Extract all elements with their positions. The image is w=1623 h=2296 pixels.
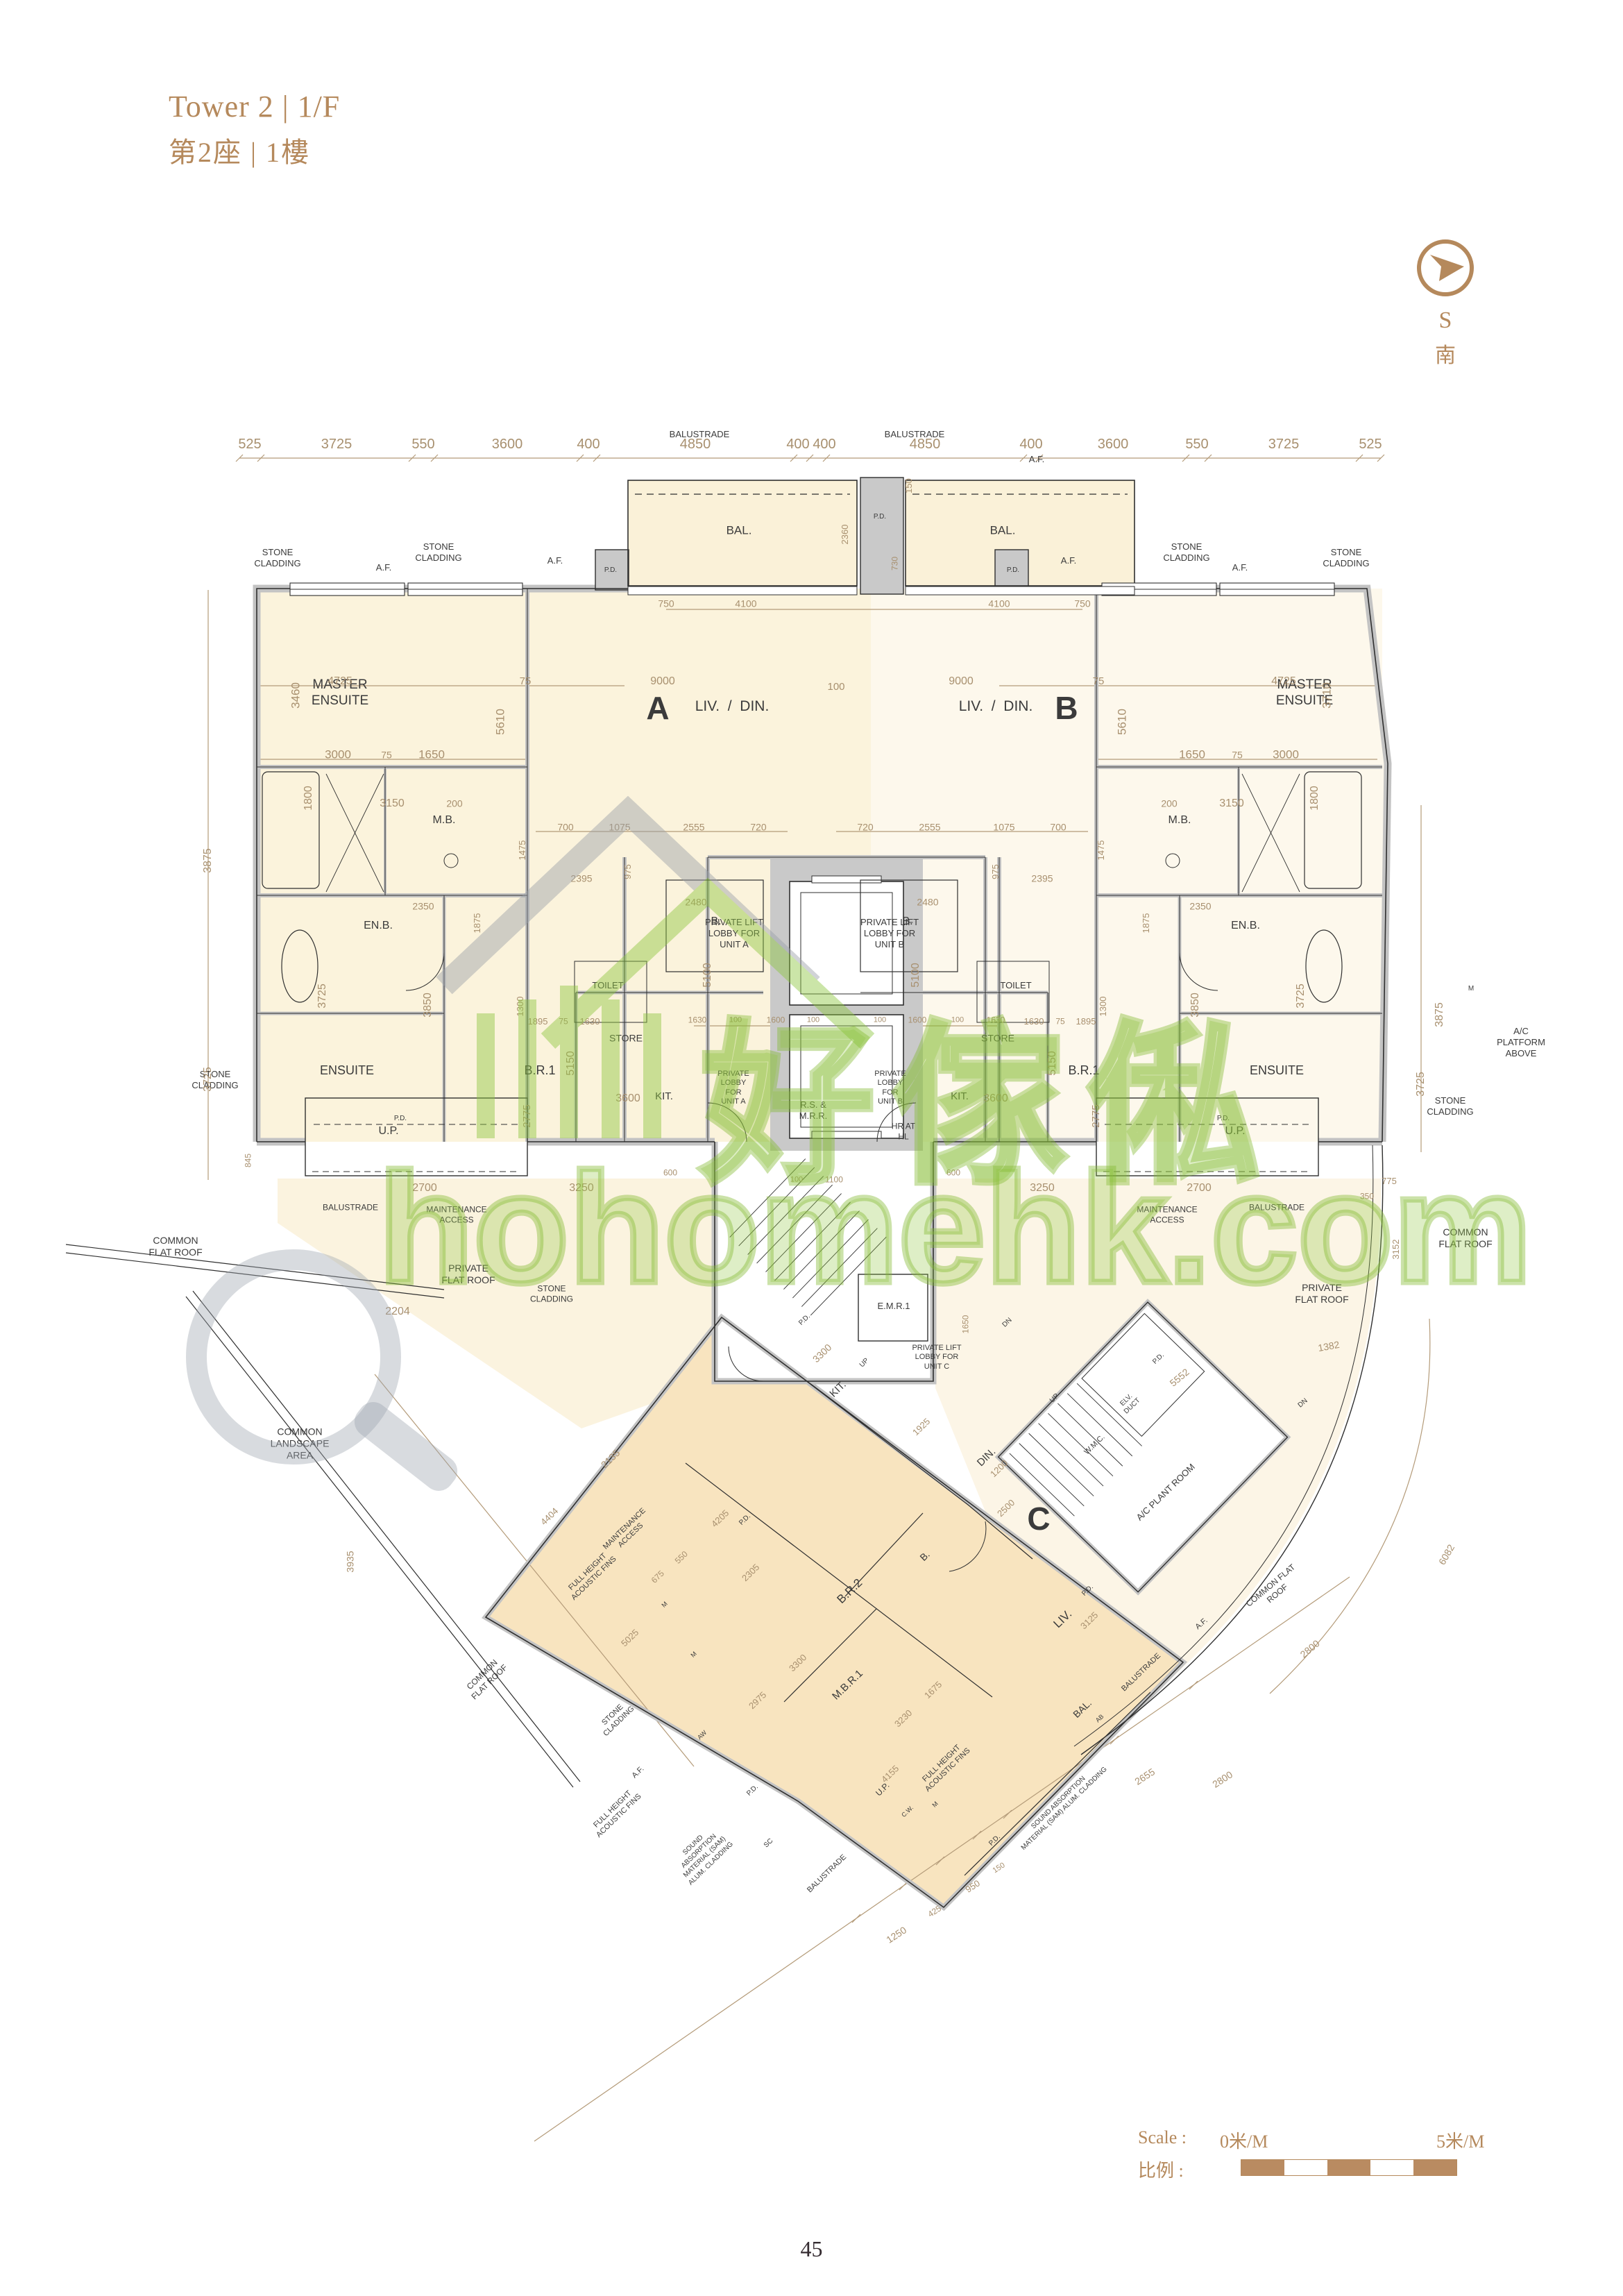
dimension-label: 1630 (688, 1015, 707, 1026)
dimension-label: 550 (411, 436, 434, 453)
dimension-label: 3850 (421, 993, 435, 1018)
dimension-label: 3150 (1219, 797, 1244, 811)
dimension-label: 400 (577, 436, 600, 453)
dimension-label: 525 (1359, 436, 1382, 453)
dimension-label: 3300 (787, 1652, 809, 1673)
dimension-label: 1650 (961, 1315, 971, 1334)
dimension-label: 150 (992, 1861, 1008, 1875)
dimension-label: 1250 (884, 1924, 908, 1945)
dimension-label: 75 (520, 675, 532, 688)
dimension-label: 100 (874, 1015, 886, 1024)
compass-icon (1407, 236, 1484, 303)
dimension-label: 600 (946, 1168, 960, 1179)
scale-segment (1370, 2160, 1413, 2175)
dimension-label: 1675 (922, 1679, 944, 1700)
compass: S 南 (1407, 236, 1484, 369)
dimension-label: 1895 (1076, 1016, 1096, 1027)
scale-start-value: 0米/M (1220, 2127, 1268, 2153)
dimension-label: 1630 (580, 1016, 600, 1027)
dimension-label: 200 (446, 797, 462, 809)
dimension-label: 845 (244, 1154, 254, 1167)
dimension-label: 3725 (1294, 984, 1308, 1008)
dimension-label: 5610 (494, 709, 509, 735)
dimension-label: 5150 (564, 1051, 578, 1076)
dimension-label: 5610 (1116, 709, 1130, 735)
dimension-label: 400 (813, 436, 835, 453)
dimension-label: 400 (786, 436, 809, 453)
dimension-label: 100 (827, 681, 844, 693)
dimension-label: 950 (964, 1877, 983, 1895)
dimension-label: 75 (1232, 749, 1243, 761)
dimension-label: 1475 (517, 841, 528, 861)
title-english: Tower 2 | 1/F (169, 89, 340, 124)
dimension-label: 3600 (615, 1092, 640, 1106)
dimension-label: 2480 (917, 896, 938, 908)
dimension-label: 2555 (683, 821, 704, 833)
scale-segment (1327, 2160, 1370, 2175)
dimension-label: 975 (622, 864, 634, 879)
dimension-label: 75 (1055, 1017, 1064, 1027)
dimension-label: 2800 (1210, 1769, 1234, 1790)
dimension-label: 3230 (892, 1707, 915, 1729)
dimension-label: 720 (750, 821, 766, 833)
dimension-label: 6082 (1436, 1542, 1457, 1567)
dimension-label: 525 (238, 436, 261, 453)
dimension-label: 3725 (1268, 436, 1300, 453)
dimension-label: 1650 (1179, 748, 1205, 763)
dimension-label: 200 (1161, 797, 1177, 809)
dimension-label: 1075 (993, 821, 1014, 833)
dimension-label: 3300 (810, 1342, 834, 1365)
dimension-label: 100 (729, 1015, 742, 1024)
dimension-label: 3600 (492, 436, 523, 453)
dimension-label: 1475 (1096, 841, 1107, 861)
dimension-label: 3875 (1433, 1002, 1447, 1027)
dimension-label: 2700 (1187, 1181, 1212, 1195)
dimension-label: 9000 (650, 675, 675, 689)
dimension-label: 2395 (570, 872, 592, 884)
dimension-label: 4404 (538, 1505, 561, 1527)
scale-segment (1413, 2160, 1456, 2175)
dimension-label: 1895 (528, 1016, 548, 1027)
dimension-label: 4205 (709, 1508, 731, 1529)
compass-letter: S (1407, 307, 1484, 334)
dimension-label: 400 (1019, 436, 1042, 453)
dimension-label: 5150 (1046, 1051, 1060, 1076)
dimension-label: 4850 (680, 436, 711, 453)
scale-label-en: Scale : (1138, 2127, 1187, 2148)
dimension-label: 3125 (1078, 1610, 1101, 1631)
dimension-label: 3725 (1414, 1072, 1428, 1097)
scale-end-value: 5米/M (1436, 2127, 1484, 2153)
dimension-label: 9000 (949, 675, 974, 689)
dimension-label: 2360 (840, 525, 851, 545)
dimension-label: 75 (559, 1017, 568, 1027)
scale-label-zh: 比例 : (1138, 2156, 1184, 2182)
dimension-label: 1100 (825, 1175, 843, 1185)
dimension-label: 1300 (1098, 997, 1109, 1017)
dimension-label: 75 (1093, 675, 1105, 688)
dimension-label: 3000 (1273, 748, 1299, 763)
dimension-label: 100 (807, 1015, 819, 1024)
dimension-label: 3710 (1320, 682, 1335, 709)
dimension-label: 5100 (701, 963, 715, 988)
dimension-label: 775 (1382, 1176, 1397, 1187)
dimension-label: 3850 (1189, 993, 1203, 1018)
dimension-label: 2800 (1298, 1637, 1323, 1660)
dimension-label: 2480 (685, 896, 706, 908)
dimension-label: 1600 (767, 1015, 785, 1026)
dimension-label: 2975 (747, 1689, 769, 1711)
dimension-labels-layer: 5253725550360040048504004004850400360055… (0, 0, 1623, 2296)
dimension-label: 2204 (385, 1305, 410, 1319)
dimension-label: 750 (658, 598, 674, 609)
dimension-label: 3600 (983, 1092, 1008, 1106)
brochure-page: MASTER ENSUITEMASTER ENSUITEALIV. / DIN.… (0, 0, 1623, 2296)
dimension-label: 750 (1074, 598, 1090, 609)
dimension-label: 75 (381, 749, 392, 761)
scale-bar-segments (1241, 2159, 1457, 2176)
dimension-label: 3600 (1098, 436, 1129, 453)
dimension-label: 2500 (995, 1497, 1017, 1519)
dimension-label: 1875 (472, 913, 483, 934)
dimension-label: 5025 (619, 1627, 641, 1648)
dimension-label: 5100 (909, 963, 923, 988)
dimension-label: 1650 (418, 748, 445, 763)
dimension-label: 675 (649, 1569, 667, 1585)
dimension-label: 3250 (1030, 1181, 1055, 1195)
dimension-label: 100 (951, 1015, 964, 1024)
dimension-label: 3935 (344, 1551, 356, 1572)
dimension-label: 4155 (879, 1763, 901, 1784)
dimension-label: 1800 (302, 786, 316, 811)
dimension-label: 1075 (609, 821, 630, 833)
dimension-label: 3250 (569, 1181, 594, 1195)
dimension-label: 3725 (316, 984, 330, 1008)
scale-segment (1241, 2160, 1284, 2175)
dimension-label: 4100 (735, 598, 756, 609)
dimension-label: 3875 (201, 848, 215, 873)
dimension-label: 150 (903, 478, 915, 493)
dimension-label: 1630 (1024, 1016, 1044, 1027)
dimension-label: 975 (990, 864, 1001, 879)
dimension-label: 2700 (412, 1181, 437, 1195)
dimension-label: 2350 (412, 900, 434, 912)
dimension-label: 730 (890, 557, 901, 571)
dimension-label: 2775 (1090, 1104, 1103, 1127)
dimension-label: 3000 (325, 748, 351, 763)
dimension-label: 1300 (515, 997, 526, 1017)
scale-bar: Scale : 0米/M 5米/M 比例 : (1138, 2120, 1527, 2183)
dimension-label: 2775 (521, 1104, 534, 1127)
dimension-label: 3460 (289, 682, 304, 709)
dimension-label: 5552 (1168, 1366, 1192, 1389)
dimension-label: 100 (790, 1175, 803, 1184)
compass-chinese: 南 (1407, 338, 1484, 369)
dimension-label: 700 (557, 821, 573, 833)
dimension-label: 3150 (380, 797, 405, 811)
dimension-label: 1630 (987, 1015, 1005, 1026)
page-number: 45 (0, 2236, 1623, 2262)
dimension-label: 3152 (1391, 1240, 1402, 1260)
dimension-label: 4850 (910, 436, 941, 453)
dimension-label: 350 (1360, 1192, 1374, 1202)
title-chinese: 第2座 | 1樓 (169, 130, 340, 170)
scale-segment (1284, 2160, 1327, 2175)
dimension-label: 425 (926, 1903, 944, 1919)
dimension-label: 2555 (919, 821, 940, 833)
dimension-label: 4725 (328, 675, 352, 689)
dimension-label: 1925 (910, 1416, 933, 1437)
dimension-label: 1382 (1317, 1339, 1341, 1354)
dimension-label: 2395 (1031, 872, 1053, 884)
dimension-label: 700 (1050, 821, 1066, 833)
dimension-label: 1200 (988, 1458, 1010, 1479)
dimension-label: 4100 (988, 598, 1010, 609)
dimension-label: 1600 (908, 1015, 927, 1026)
dimension-label: 3725 (201, 1067, 215, 1092)
dimension-label: 2350 (1189, 900, 1211, 912)
dimension-label: 2305 (740, 1562, 762, 1583)
dimension-label: 720 (857, 821, 873, 833)
dimension-label: 550 (673, 1549, 690, 1566)
dimension-label: 600 (663, 1168, 677, 1179)
page-title: Tower 2 | 1/F 第2座 | 1樓 (169, 89, 340, 170)
dimension-label: 2655 (1132, 1766, 1157, 1787)
dimension-label: 2135 (599, 1447, 622, 1471)
dimension-label: 1800 (1308, 786, 1322, 811)
dimension-label: 4725 (1271, 675, 1296, 689)
dimension-label: 550 (1185, 436, 1208, 453)
dimension-label: 3725 (321, 436, 352, 453)
dimension-label: 1875 (1141, 913, 1152, 934)
